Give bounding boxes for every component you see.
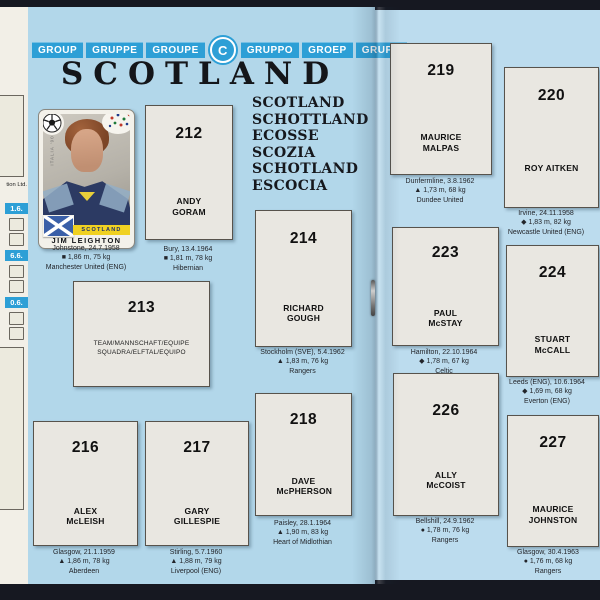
sticker-number: 214: [256, 230, 351, 248]
sticker-slot-226: 226 ALLY McCOIST: [393, 373, 499, 516]
caption-line: ● 1,76 m, 68 kg: [492, 557, 600, 566]
sticker-caption-214: Stockholm (SVE), 5.4.1962 ▲ 1,83 m, 76 k…: [240, 348, 365, 376]
fixture-date-label: 0.6.: [5, 297, 28, 308]
caption-line: Aberdeen: [24, 567, 144, 576]
team-slot-label-line: SQUADRA/ELFTAL/EQUIPO: [74, 349, 209, 358]
caption-line: Newcastle United (ENG): [490, 228, 600, 237]
sticker-number: 224: [507, 264, 598, 282]
checkbox: [9, 218, 24, 231]
sticker-caption-220: Irvine, 24.11.1958 ◆ 1,83 m, 82 kg Newca…: [490, 209, 600, 237]
caption-line: ▲ 1,88 m, 79 kg: [136, 557, 256, 566]
player-face: [71, 129, 103, 172]
sticker-slot-223: 223 PAUL McSTAY: [392, 227, 499, 346]
caption-line: Hibernian: [128, 264, 248, 273]
page-fold: [352, 7, 400, 584]
sticker-number: 217: [146, 439, 248, 457]
sticker-slot-212: 212 ANDY GORAM: [145, 105, 233, 240]
sticker-number: 220: [505, 87, 598, 105]
player-name: PAUL McSTAY: [419, 308, 473, 328]
player-name: ALEX McLEISH: [59, 506, 113, 526]
caption-line: ◆ 1,78 m, 67 kg: [384, 357, 504, 366]
caption-line: Hamilton, 22.10.1964: [384, 348, 504, 357]
jersey-collar: [79, 192, 95, 201]
sticker-slot-218: 218 DAVE McPHERSON: [255, 393, 352, 516]
sticker-number: 227: [508, 434, 598, 452]
checkbox: [9, 312, 24, 325]
sticker-caption-227: Glasgow, 30.4.1963 ● 1,76 m, 68 kg Range…: [492, 548, 600, 576]
sticker-country-banner: SCOTLAND: [73, 225, 130, 235]
sticker-slot-220: 220 ROY AITKEN: [504, 67, 599, 208]
caption-line: Glasgow, 30.4.1963: [492, 548, 600, 557]
sticker-caption-224: Leeds (ENG), 10.6.1964 ◆ 1,69 m, 68 kg E…: [491, 378, 600, 406]
sticker-slot-216: 216 ALEX McLEISH: [33, 421, 138, 546]
scotland-flag-icon: [43, 215, 74, 237]
sticker-number: 226: [394, 402, 498, 420]
player-name: ALLY McCOIST: [419, 470, 473, 490]
partial-sticker-box: [0, 95, 24, 177]
sticker-number: 223: [393, 244, 498, 262]
sticker-slot-214: 214 RICHARD GOUGH: [255, 210, 352, 347]
player-name: ROY AITKEN: [525, 163, 579, 173]
caption-line: Everton (ENG): [491, 397, 600, 406]
caption-line: ■ 1,81 m, 78 kg: [128, 254, 248, 263]
caption-line: Rangers: [240, 367, 365, 376]
sticker-slot-224: 224 STUART McCALL: [506, 245, 599, 377]
partial-publisher-text: tion Ltd.: [0, 182, 27, 188]
sticker-number: 218: [256, 411, 351, 429]
page-title: SCOTLAND: [50, 56, 350, 92]
player-name: DAVE McPHERSON: [277, 476, 331, 496]
caption-line: Liverpool (ENG): [136, 567, 256, 576]
checkbox: [9, 233, 24, 246]
sticker-caption-212: Bury, 13.4.1964 ■ 1,81 m, 78 kg Hibernia…: [128, 245, 248, 273]
caption-line: ◆ 1,83 m, 82 kg: [490, 218, 600, 227]
caption-line: ▲ 1,90 m, 83 kg: [240, 528, 365, 537]
caption-line: Glasgow, 21.1.1959: [24, 548, 144, 557]
confetti-icon: [102, 114, 130, 134]
caption-line: ◆ 1,69 m, 68 kg: [491, 387, 600, 396]
caption-line: Leeds (ENG), 10.6.1964: [491, 378, 600, 387]
sticker-caption-218: Paisley, 28.1.1964 ▲ 1,90 m, 83 kg Heart…: [240, 519, 365, 547]
caption-line: Heart of Midlothian: [240, 538, 365, 547]
caption-line: ● 1,78 m, 76 kg: [385, 526, 505, 535]
player-name: MAURICE JOHNSTON: [526, 504, 580, 524]
football-icon: [43, 114, 64, 135]
checklist-edge-strip: tion Ltd. 1.6. 6.6. 0.6.: [0, 7, 28, 584]
partial-sticker-box: [0, 347, 24, 510]
sticker-country-banner-text: SCOTLAND: [81, 227, 121, 233]
checkbox: [9, 265, 24, 278]
sticker-number: 219: [391, 62, 491, 80]
caption-line: Irvine, 24.11.1958: [490, 209, 600, 218]
caption-line: Stockholm (SVE), 5.4.1962: [240, 348, 365, 357]
caption-line: Bury, 13.4.1964: [128, 245, 248, 254]
sticker-edge-text: ITALIA '90: [50, 135, 55, 165]
checkbox: [9, 280, 24, 293]
player-name: ANDY GORAM: [162, 196, 216, 216]
player-name: STUART McCALL: [526, 334, 580, 354]
caption-line: Bellshill, 24.9.1962: [385, 517, 505, 526]
sticker-number: 216: [34, 439, 137, 457]
sticker-jim-leighton: ITALIA '90: [38, 109, 135, 249]
player-name: GARY GILLESPIE: [170, 506, 224, 526]
sticker-slot-227: 227 MAURICE JOHNSTON: [507, 415, 599, 547]
team-slot-label-line: TEAM/MANNSCHAFT/EQUIPE: [74, 340, 209, 349]
caption-line: Paisley, 28.1.1964: [240, 519, 365, 528]
caption-line: Stirling, 5.7.1960: [136, 548, 256, 557]
caption-line: ▲ 1,86 m, 78 kg: [24, 557, 144, 566]
sticker-number: 212: [146, 125, 232, 143]
sticker-caption-226: Bellshill, 24.9.1962 ● 1,78 m, 76 kg Ran…: [385, 517, 505, 545]
fixture-date-label: 1.6.: [5, 203, 28, 214]
caption-line: ▲ 1,83 m, 76 kg: [240, 357, 365, 366]
album-spread: tion Ltd. 1.6. 6.6. 0.6. GROUP GRUPPE GR…: [0, 7, 600, 584]
checkbox: [9, 327, 24, 340]
player-name: MAURICE MALPAS: [414, 132, 468, 152]
caption-line: Rangers: [492, 567, 600, 576]
sticker-caption-216: Glasgow, 21.1.1959 ▲ 1,86 m, 78 kg Aberd…: [24, 548, 144, 576]
sticker-slot-217: 217 GARY GILLESPIE: [145, 421, 249, 546]
player-name: RICHARD GOUGH: [277, 303, 331, 323]
sticker-number: 213: [74, 299, 209, 317]
sticker-slot-213-team: 213 TEAM/MANNSCHAFT/EQUIPE SQUADRA/ELFTA…: [73, 281, 210, 387]
sticker-slot-219: 219 MAURICE MALPAS: [390, 43, 492, 175]
caption-line: Rangers: [385, 536, 505, 545]
sticker-caption-217: Stirling, 5.7.1960 ▲ 1,88 m, 79 kg Liver…: [136, 548, 256, 576]
team-slot-label: TEAM/MANNSCHAFT/EQUIPE SQUADRA/ELFTAL/EQ…: [74, 340, 209, 358]
staple: [371, 280, 375, 316]
